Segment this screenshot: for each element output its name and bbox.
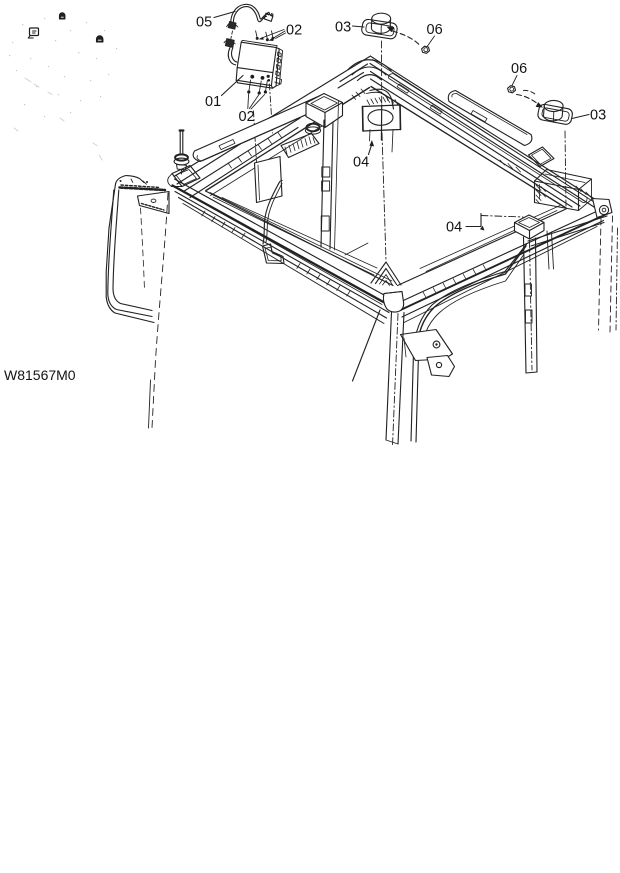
svg-text:05: 05: [196, 15, 212, 31]
svg-text:02: 02: [286, 23, 302, 39]
svg-text:06: 06: [511, 61, 527, 77]
svg-text:06: 06: [427, 22, 443, 38]
svg-text:01: 01: [205, 94, 221, 110]
svg-text:W81567M0: W81567M0: [4, 367, 76, 383]
svg-text:04: 04: [446, 220, 462, 236]
svg-text:04: 04: [353, 155, 369, 171]
svg-text:03: 03: [590, 108, 606, 124]
svg-text:02: 02: [239, 109, 255, 125]
svg-text:03: 03: [335, 20, 351, 36]
